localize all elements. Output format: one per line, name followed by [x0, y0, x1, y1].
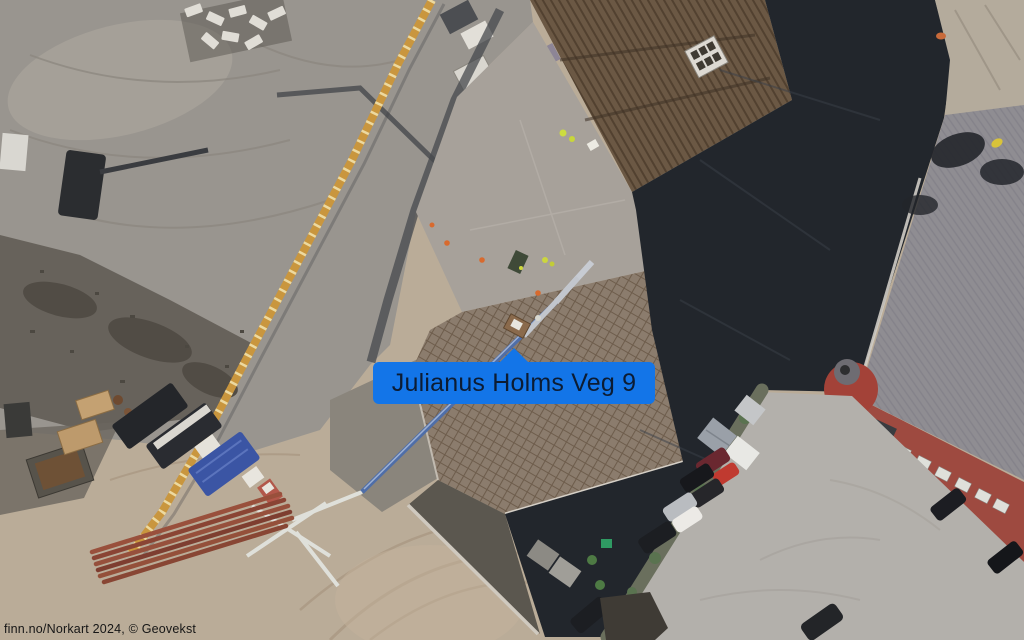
orange-marker [936, 33, 946, 40]
address-label-text: Julianus Holms Veg 9 [392, 369, 636, 398]
address-label[interactable]: Julianus Holms Veg 9 [373, 362, 655, 404]
map-canvas[interactable]: Julianus Holms Veg 9 finn.no/Norkart 202… [0, 0, 1024, 640]
aerial-photo [0, 0, 1024, 640]
worker [535, 315, 541, 321]
white-van [0, 133, 29, 171]
green-dumpster [601, 539, 612, 548]
map-attribution: finn.no/Norkart 2024, © Geovekst [4, 622, 196, 636]
